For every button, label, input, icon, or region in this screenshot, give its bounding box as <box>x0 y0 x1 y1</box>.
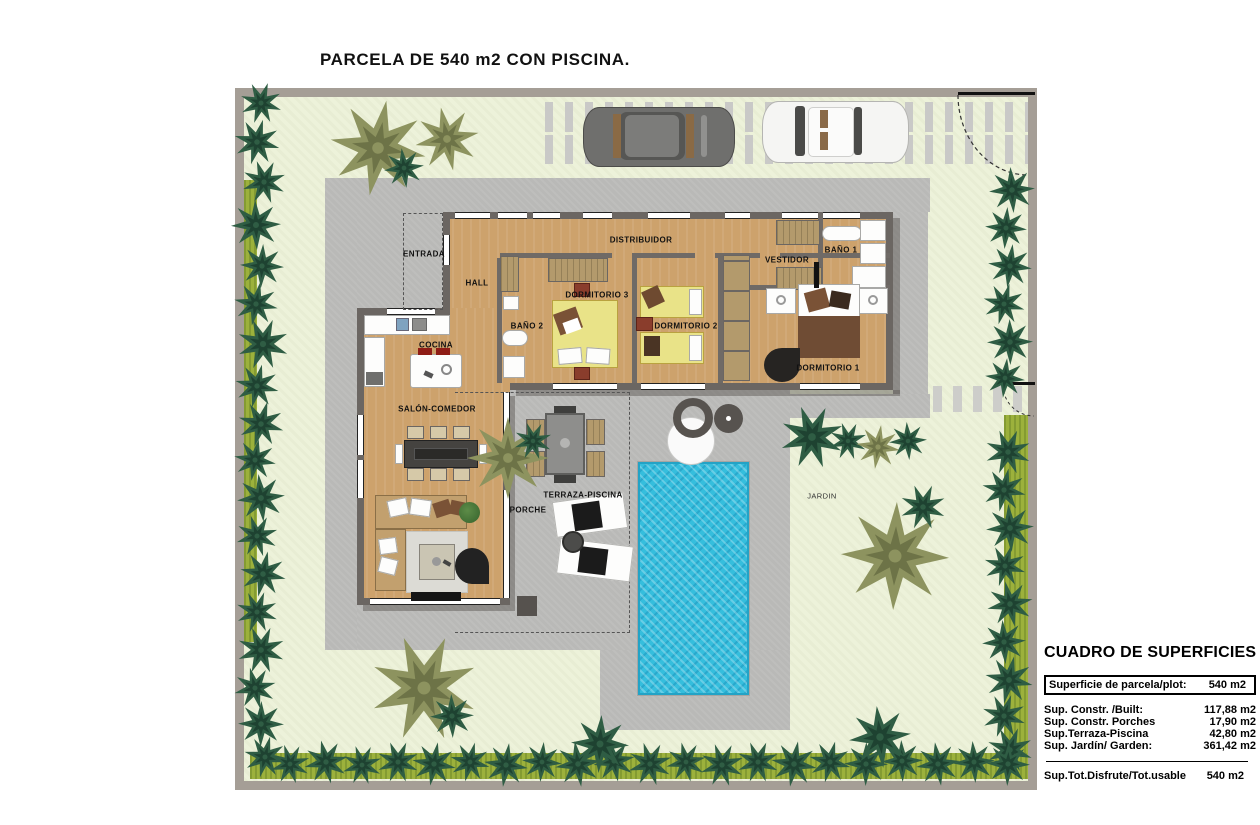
room-label-salon: SALÓN-COMEDOR <box>398 405 476 414</box>
nightstand <box>574 367 590 380</box>
room-label-vestidor: VESTIDOR <box>765 256 809 265</box>
pillow <box>585 347 610 365</box>
dining-chair <box>430 468 447 481</box>
bathroom1-toilet <box>860 243 886 264</box>
room-label-hall: HALL <box>466 279 489 288</box>
surface-row: Sup.Terraza-Piscina 42,80 m2 <box>1044 728 1256 740</box>
surface-row-value: 42,80 m2 <box>1210 728 1256 740</box>
room-label-bano2: BAÑO 2 <box>511 322 544 331</box>
window <box>800 383 860 390</box>
surface-row-label: Sup. Jardín/ Garden: <box>1044 740 1152 752</box>
window <box>455 212 490 219</box>
island-sink <box>441 364 452 375</box>
surface-table-total-row: Sup.Tot.Disfrute/Tot.usable 540 m2 <box>1044 770 1256 782</box>
page-title: PARCELA DE 540 m2 CON PISCINA. <box>320 50 630 70</box>
kitchen-stove <box>412 318 427 331</box>
plant <box>459 502 480 523</box>
patio-chair <box>586 451 605 477</box>
kitchen-sink <box>396 318 409 331</box>
dressing-divider <box>814 262 819 288</box>
kitchen-oven <box>366 372 383 385</box>
surface-table-rows: Sup. Constr. /Built: 117,88 m2 Sup. Cons… <box>1044 704 1256 752</box>
bathroom1-tub <box>822 226 862 241</box>
pillow <box>829 290 851 309</box>
window <box>553 383 617 390</box>
bathroom2-sink <box>503 296 519 310</box>
surface-table-plot-row: Superficie de parcela/plot: 540 m2 <box>1044 675 1256 695</box>
surface-row-label: Sup. Constr. /Built: <box>1044 704 1143 716</box>
dark-car <box>583 105 733 167</box>
lounger-side-table <box>562 531 584 553</box>
entrance-outline <box>403 213 443 310</box>
patio-chair <box>586 419 605 445</box>
tree-icon <box>985 741 1031 787</box>
patio-table-center <box>560 438 570 448</box>
driveway-gate-swing-arc <box>958 95 1028 175</box>
cushion <box>378 537 398 555</box>
room-label-distribuidor: DISTRIBUIDOR <box>610 236 673 245</box>
room-label-cocina: COCINA <box>419 341 453 350</box>
house-shadow <box>893 218 900 394</box>
surface-row-value: 17,90 m2 <box>1210 716 1256 728</box>
window <box>725 212 750 219</box>
dressing-wardrobe <box>776 220 820 245</box>
driveway-gate <box>958 92 1035 95</box>
room-label-dormitorio2: DORMITORIO 2 <box>654 322 717 331</box>
room-label-bano1: BAÑO 1 <box>825 246 858 255</box>
nightstand-lamp <box>776 295 786 305</box>
porch-pillar <box>517 596 537 616</box>
paved-west-strip <box>325 212 357 650</box>
room-label-porche: PORCHE <box>510 506 547 515</box>
window <box>648 212 690 219</box>
bedroom3-wardrobe <box>548 258 608 282</box>
window <box>782 212 818 219</box>
room-label-entrada: ENTRADA <box>403 250 445 259</box>
room-label-terraza: TERRAZA-PISCINA <box>543 491 622 500</box>
coffee-table-bowl <box>432 557 441 566</box>
window <box>357 415 364 455</box>
dining-chair <box>430 426 447 439</box>
window <box>641 383 705 390</box>
total-row-label: Sup.Tot.Disfrute/Tot.usable <box>1044 770 1186 782</box>
wall-west-living <box>357 308 364 605</box>
dining-chair <box>407 468 424 481</box>
tree-icon <box>429 693 475 739</box>
poolside-table-dot <box>726 416 731 421</box>
poolside-ring-planter <box>673 398 713 438</box>
surface-table-title: CUADRO DE SUPERFICIES <box>1044 644 1256 662</box>
surface-row-label: Sup. Constr. Porches <box>1044 716 1155 728</box>
surface-row-value: 361,42 m2 <box>1203 740 1256 752</box>
tv <box>411 592 461 601</box>
pillow <box>689 289 702 315</box>
room-label-dormitorio1: DORMITORIO 1 <box>796 364 859 373</box>
plot-row-value: 540 m2 <box>1209 679 1246 691</box>
kitchen-island <box>410 354 462 388</box>
surface-row-value: 117,88 m2 <box>1204 704 1256 716</box>
bathroom2-tub <box>502 330 528 346</box>
window <box>533 212 560 219</box>
total-row-value: 540 m2 <box>1207 770 1244 782</box>
surface-row-label: Sup.Terraza-Piscina <box>1044 728 1148 740</box>
sideboard <box>395 444 403 464</box>
pillow <box>557 347 582 365</box>
fan-armchair <box>455 548 489 584</box>
bedroom2-chest <box>644 336 660 356</box>
white-car <box>762 98 907 164</box>
bathroom1-sink <box>860 220 886 241</box>
pillow <box>689 335 702 361</box>
hall-cabinet <box>500 256 519 292</box>
surface-table-divider <box>1046 761 1248 762</box>
window <box>823 212 860 219</box>
swimming-pool <box>638 462 749 695</box>
nightstand-lamp <box>868 295 878 305</box>
surface-row: Sup. Jardín/ Garden: 361,42 m2 <box>1044 740 1256 752</box>
room-label-dormitorio3: DORMITORIO 3 <box>565 291 628 300</box>
bedroom1-blanket <box>798 316 860 358</box>
room-label-jardin: JARDIN <box>807 492 837 501</box>
window <box>583 212 612 219</box>
dining-chair <box>407 426 424 439</box>
fan-armchair <box>764 348 800 382</box>
surface-row: Sup. Constr. /Built: 117,88 m2 <box>1044 704 1256 716</box>
patio-table-leg <box>554 474 576 483</box>
built-in-wardrobe <box>723 255 750 381</box>
surface-row: Sup. Constr. Porches 17,90 m2 <box>1044 716 1256 728</box>
window <box>357 460 364 498</box>
bathroom2-shower <box>503 356 525 378</box>
nightstand <box>636 317 653 331</box>
plot-row-label: Superficie de parcela/plot: <box>1049 679 1187 691</box>
surface-table: CUADRO DE SUPERFICIES Superficie de parc… <box>1044 644 1256 782</box>
window <box>498 212 527 219</box>
corridor-wall <box>632 253 695 258</box>
cushion <box>409 498 432 518</box>
dining-table-runner <box>414 448 468 460</box>
